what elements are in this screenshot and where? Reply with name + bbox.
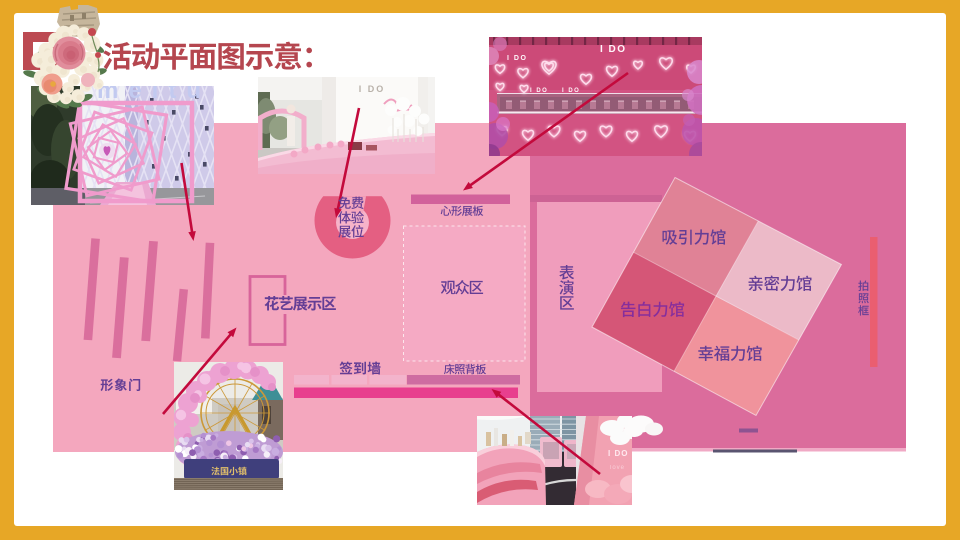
svg-text:I DO: I DO (359, 84, 386, 94)
svg-text:meitu: meitu (97, 77, 211, 104)
svg-text:I DO: I DO (600, 44, 627, 55)
svg-text:I DO: I DO (507, 55, 527, 62)
svg-text:I DO: I DO (562, 88, 580, 94)
svg-text:I DO: I DO (608, 449, 628, 458)
svg-text:love: love (610, 465, 625, 471)
svg-text:I DO: I DO (530, 88, 548, 94)
